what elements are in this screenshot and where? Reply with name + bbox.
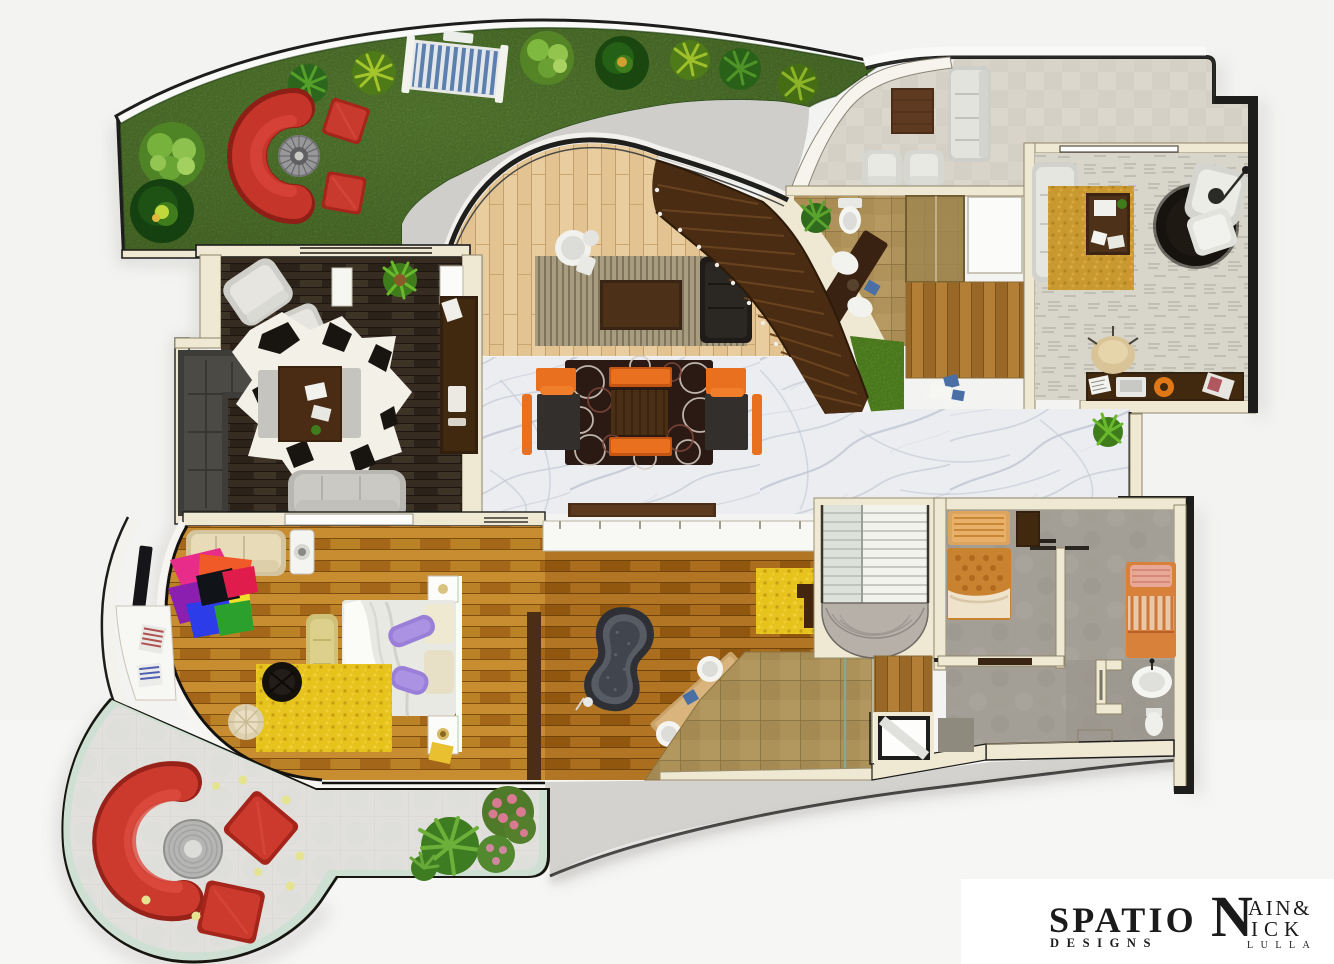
svg-text:LULLA: LULLA	[1247, 940, 1317, 951]
svg-text:ICK: ICK	[1251, 917, 1305, 941]
svg-text:DESIGNS: DESIGNS	[1050, 936, 1158, 950]
svg-text:SPATIO: SPATIO	[1049, 900, 1197, 940]
